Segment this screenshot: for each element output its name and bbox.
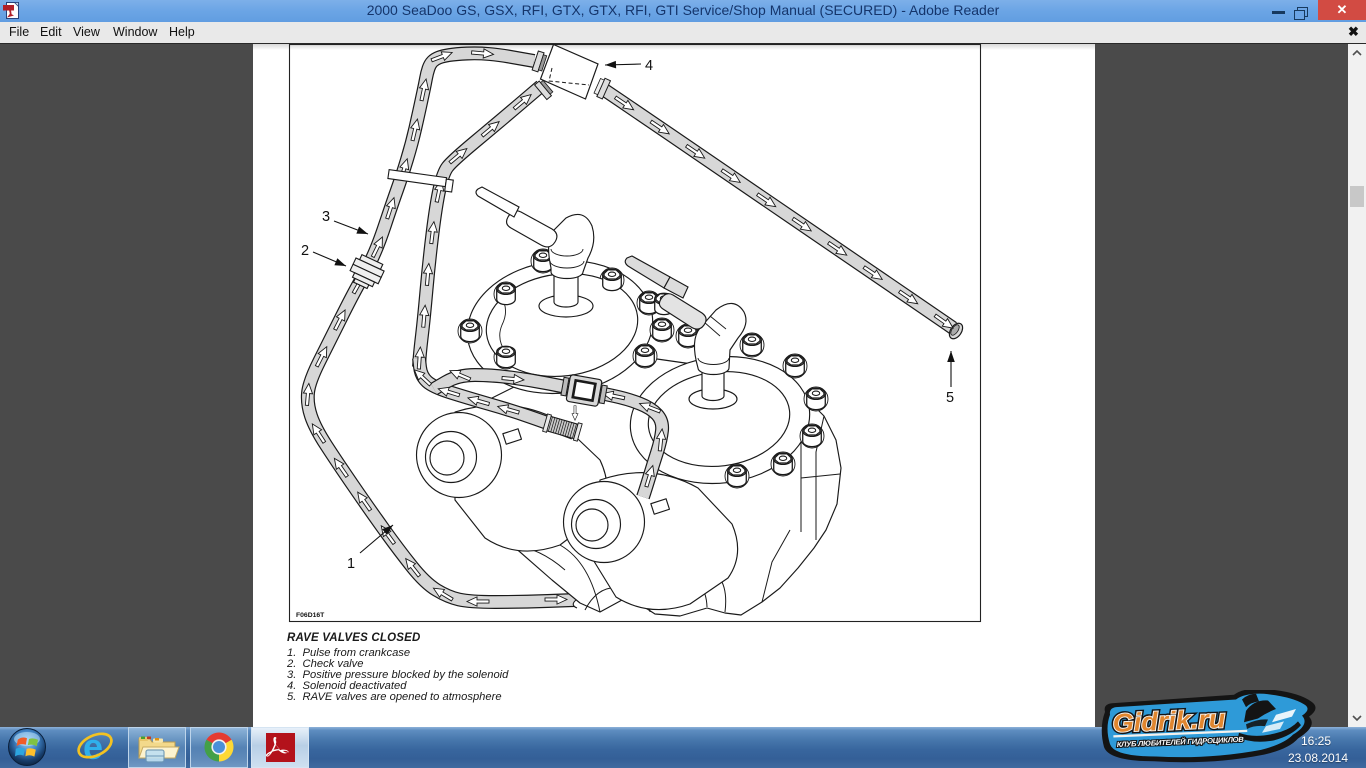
svg-text:1: 1	[347, 556, 355, 572]
svg-text:2: 2	[301, 243, 309, 259]
svg-text:5: 5	[946, 390, 954, 406]
svg-text:3: 3	[322, 209, 330, 225]
svg-text:4: 4	[645, 58, 653, 74]
svg-text:F06D16T: F06D16T	[296, 612, 325, 619]
